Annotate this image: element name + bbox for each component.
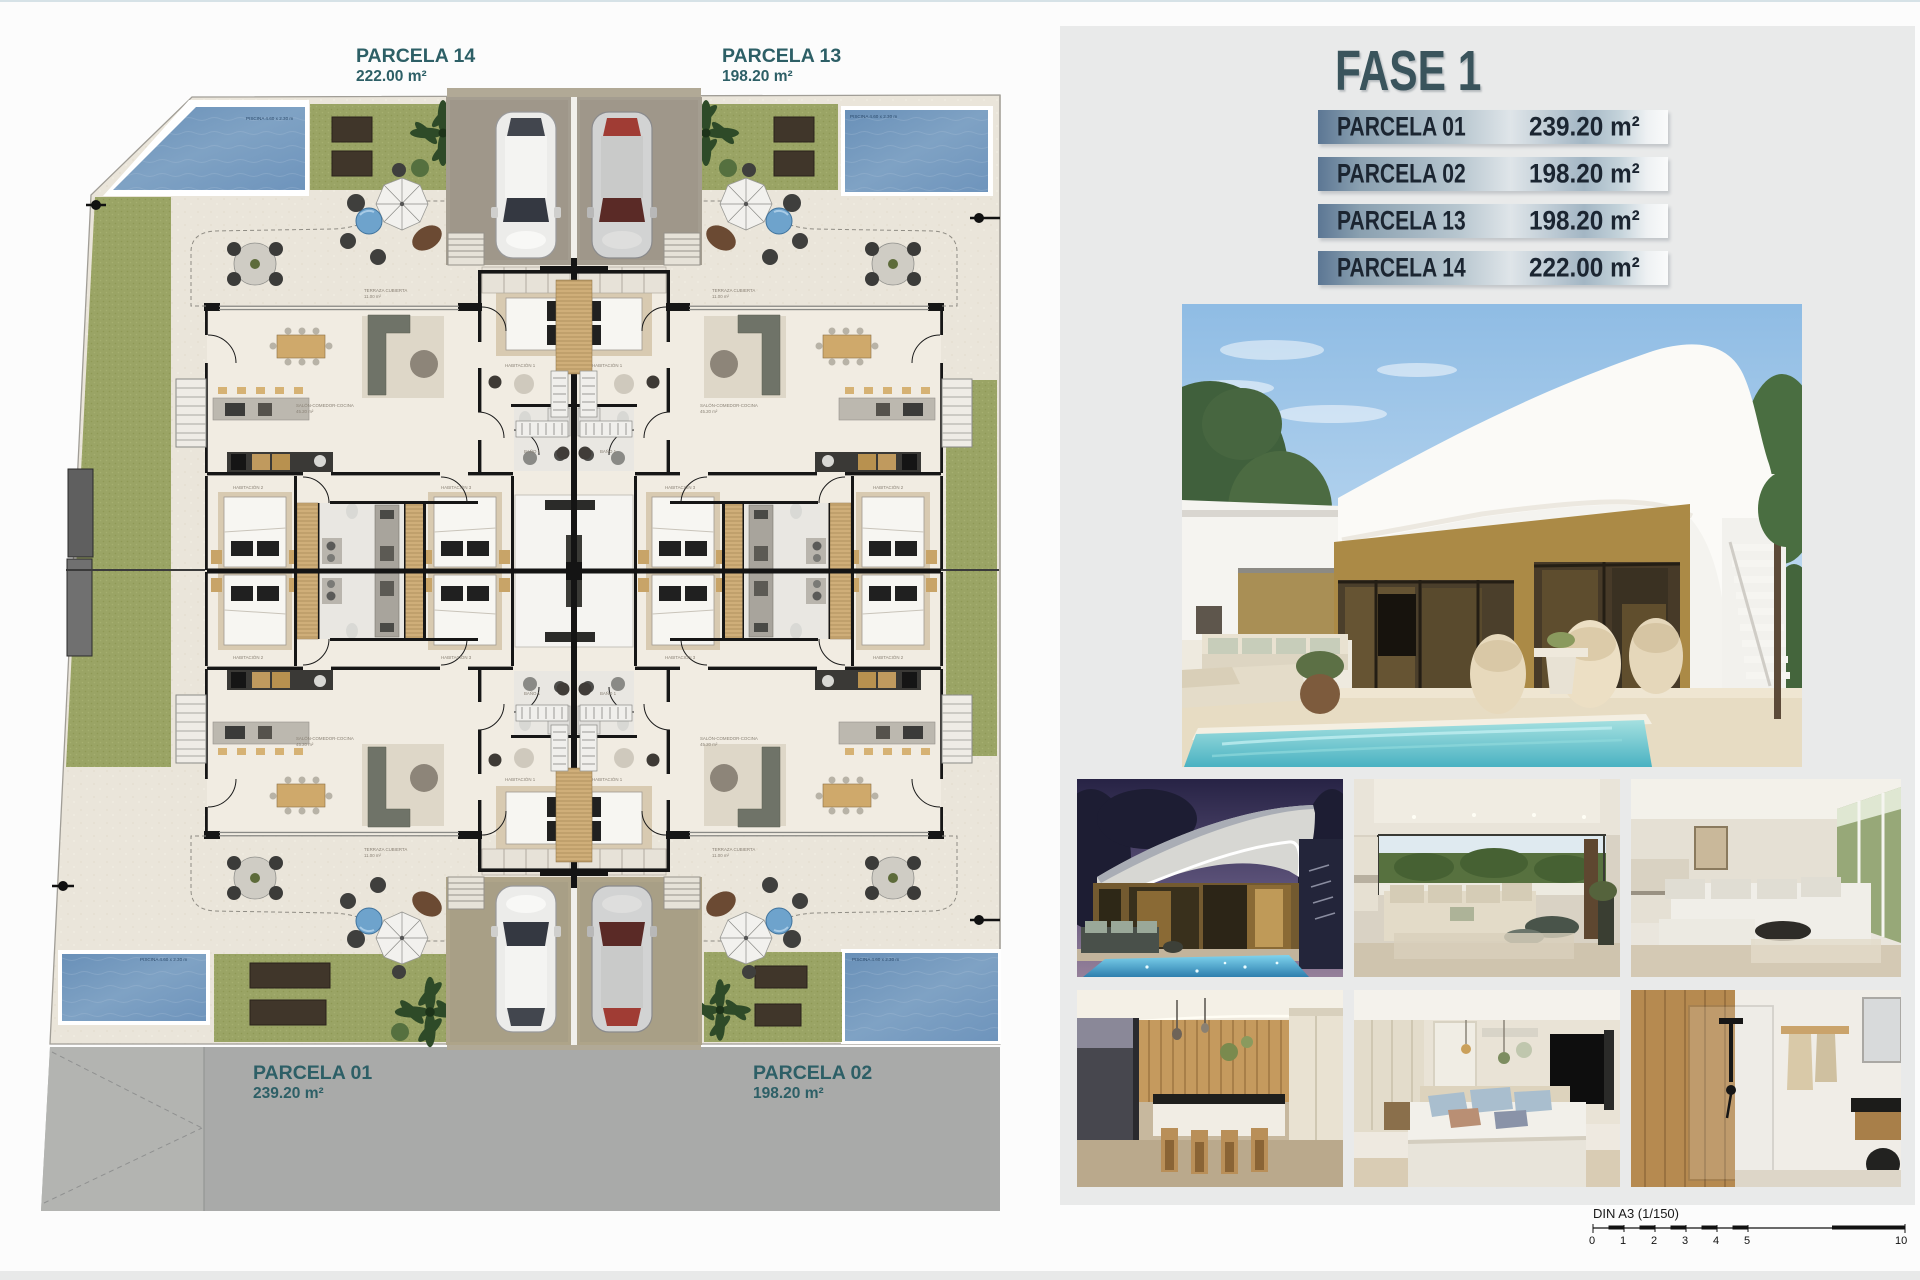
svg-text:198.20 m²: 198.20 m² [753, 1085, 824, 1102]
svg-text:HABITACIÓN 3: HABITACIÓN 3 [665, 655, 696, 660]
svg-text:PARCELA 14: PARCELA 14 [356, 45, 475, 67]
svg-text:PISCINA 4.60 x 2.30 m: PISCINA 4.60 x 2.30 m [850, 114, 897, 119]
svg-text:222.00 m²: 222.00 m² [356, 68, 427, 85]
svg-text:SALÓN-COMEDOR-COCINA: SALÓN-COMEDOR-COCINA [700, 403, 758, 408]
svg-text:0: 0 [1589, 1235, 1595, 1247]
svg-text:SALÓN-COMEDOR-COCINA: SALÓN-COMEDOR-COCINA [296, 403, 354, 408]
svg-text:HABITACIÓN 3: HABITACIÓN 3 [665, 485, 696, 490]
svg-text:PARCELA 01: PARCELA 01 [253, 1062, 372, 1084]
svg-text:HABITACIÓN 1: HABITACIÓN 1 [592, 777, 623, 782]
svg-text:5: 5 [1744, 1235, 1750, 1247]
svg-text:HABITACIÓN 3: HABITACIÓN 3 [441, 655, 472, 660]
svg-text:HABITACIÓN 1: HABITACIÓN 1 [505, 777, 536, 782]
svg-text:11.00 m²: 11.00 m² [364, 853, 382, 858]
svg-text:TERRAZA CUBIERTA: TERRAZA CUBIERTA [364, 847, 407, 852]
svg-text:SALÓN-COMEDOR-COCINA: SALÓN-COMEDOR-COCINA [296, 736, 354, 741]
svg-text:11.00 m²: 11.00 m² [712, 294, 730, 299]
svg-text:BAÑO 1: BAÑO 1 [600, 691, 617, 696]
svg-text:TERRAZA CUBIERTA: TERRAZA CUBIERTA [712, 847, 755, 852]
svg-text:SALÓN-COMEDOR-COCINA: SALÓN-COMEDOR-COCINA [700, 736, 758, 741]
svg-text:HABITACIÓN 2: HABITACIÓN 2 [233, 655, 264, 660]
svg-text:DIN A3 (1/150): DIN A3 (1/150) [1593, 1206, 1679, 1221]
svg-text:BAÑO 1: BAÑO 1 [600, 449, 617, 454]
svg-text:198.20 m²: 198.20 m² [722, 68, 793, 85]
svg-text:PISCINA 4.60 x 2.30 m: PISCINA 4.60 x 2.30 m [852, 957, 899, 962]
svg-text:1: 1 [1620, 1235, 1626, 1247]
svg-text:4: 4 [1713, 1235, 1719, 1247]
svg-text:2: 2 [1651, 1235, 1657, 1247]
svg-text:PARCELA 13: PARCELA 13 [722, 45, 841, 67]
svg-text:45.20 m²: 45.20 m² [700, 409, 718, 414]
svg-text:TERRAZA CUBIERTA: TERRAZA CUBIERTA [364, 288, 407, 293]
svg-text:10: 10 [1895, 1235, 1907, 1247]
svg-text:BAÑO 1: BAÑO 1 [524, 449, 541, 454]
svg-text:HABITACIÓN 3: HABITACIÓN 3 [441, 485, 472, 490]
svg-text:BAÑO 1: BAÑO 1 [524, 691, 541, 696]
svg-text:11.00 m²: 11.00 m² [364, 294, 382, 299]
svg-text:45.20 m²: 45.20 m² [296, 742, 314, 747]
svg-text:239.20 m²: 239.20 m² [253, 1085, 324, 1102]
svg-text:45.20 m²: 45.20 m² [700, 742, 718, 747]
svg-text:HABITACIÓN 2: HABITACIÓN 2 [233, 485, 264, 490]
svg-text:PARCELA 02: PARCELA 02 [753, 1062, 872, 1084]
svg-text:PISCINA 4.60 x 2.30 m: PISCINA 4.60 x 2.30 m [140, 957, 187, 962]
svg-text:HABITACIÓN 1: HABITACIÓN 1 [505, 363, 536, 368]
svg-text:45.20 m²: 45.20 m² [296, 409, 314, 414]
svg-text:TERRAZA CUBIERTA: TERRAZA CUBIERTA [712, 288, 755, 293]
svg-text:HABITACIÓN 2: HABITACIÓN 2 [873, 655, 904, 660]
svg-text:HABITACIÓN 2: HABITACIÓN 2 [873, 485, 904, 490]
svg-text:11.00 m²: 11.00 m² [712, 853, 730, 858]
svg-text:HABITACIÓN 1: HABITACIÓN 1 [592, 363, 623, 368]
svg-text:PISCINA 4.60 x 2.30 m: PISCINA 4.60 x 2.30 m [246, 116, 293, 121]
svg-text:3: 3 [1682, 1235, 1688, 1247]
